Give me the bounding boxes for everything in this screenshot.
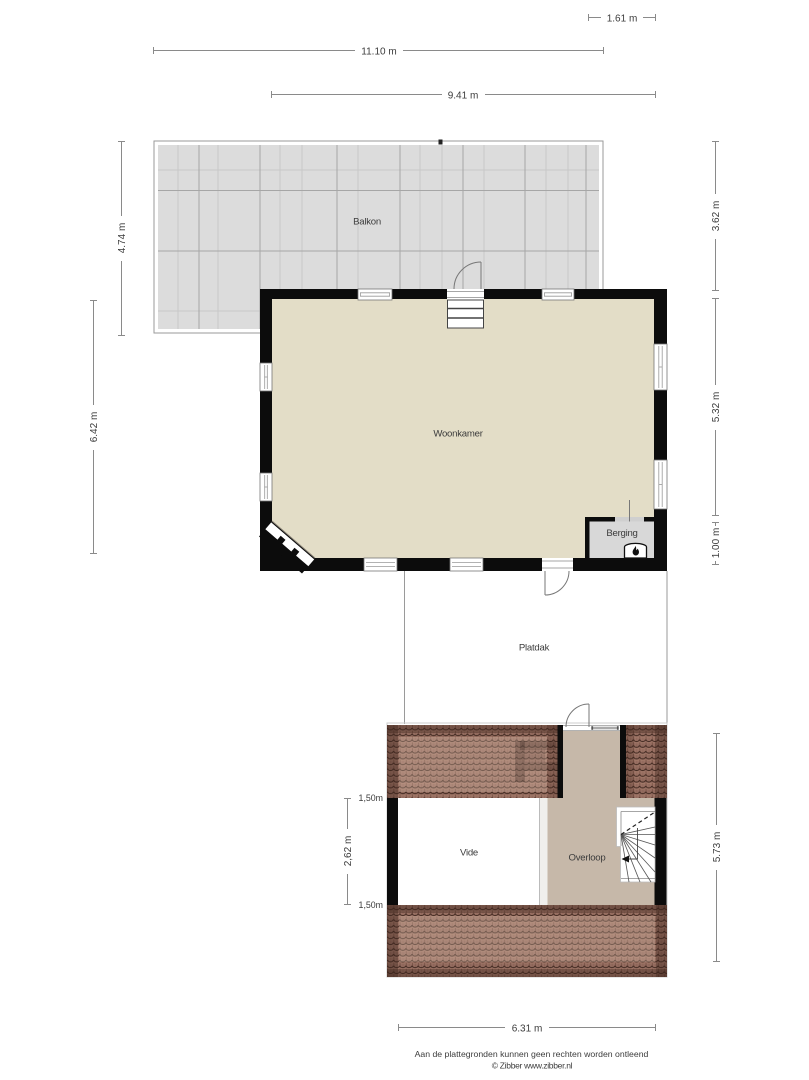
svg-text:5.73 m: 5.73 m <box>712 832 723 863</box>
svg-text:Overloop: Overloop <box>569 853 606 864</box>
svg-text:6.42 m: 6.42 m <box>89 412 100 443</box>
svg-text:Berging: Berging <box>606 528 637 539</box>
svg-text:5.32 m: 5.32 m <box>711 392 722 423</box>
svg-text:3.62 m: 3.62 m <box>711 201 722 232</box>
svg-text:1,50m: 1,50m <box>359 900 383 910</box>
svg-text:1.00 m: 1.00 m <box>711 528 722 559</box>
svg-text:1.61 m: 1.61 m <box>607 14 638 25</box>
svg-text:© Zibber www.zibber.nl: © Zibber www.zibber.nl <box>492 1061 573 1071</box>
svg-text:Platdak: Platdak <box>519 643 550 654</box>
svg-text:Woonkamer: Woonkamer <box>433 429 483 440</box>
svg-text:1,50m: 1,50m <box>359 793 383 803</box>
svg-text:11.10 m: 11.10 m <box>361 47 396 58</box>
svg-text:4.74 m: 4.74 m <box>117 223 128 254</box>
svg-text:9.41 m: 9.41 m <box>448 91 479 102</box>
svg-text:6.31 m: 6.31 m <box>512 1024 543 1035</box>
svg-text:Vide: Vide <box>460 848 478 859</box>
svg-text:Balkon: Balkon <box>353 217 381 228</box>
svg-text:Aan de plattegronden kunnen ge: Aan de plattegronden kunnen geen rechten… <box>415 1049 649 1059</box>
svg-text:2,62 m: 2,62 m <box>343 836 354 867</box>
